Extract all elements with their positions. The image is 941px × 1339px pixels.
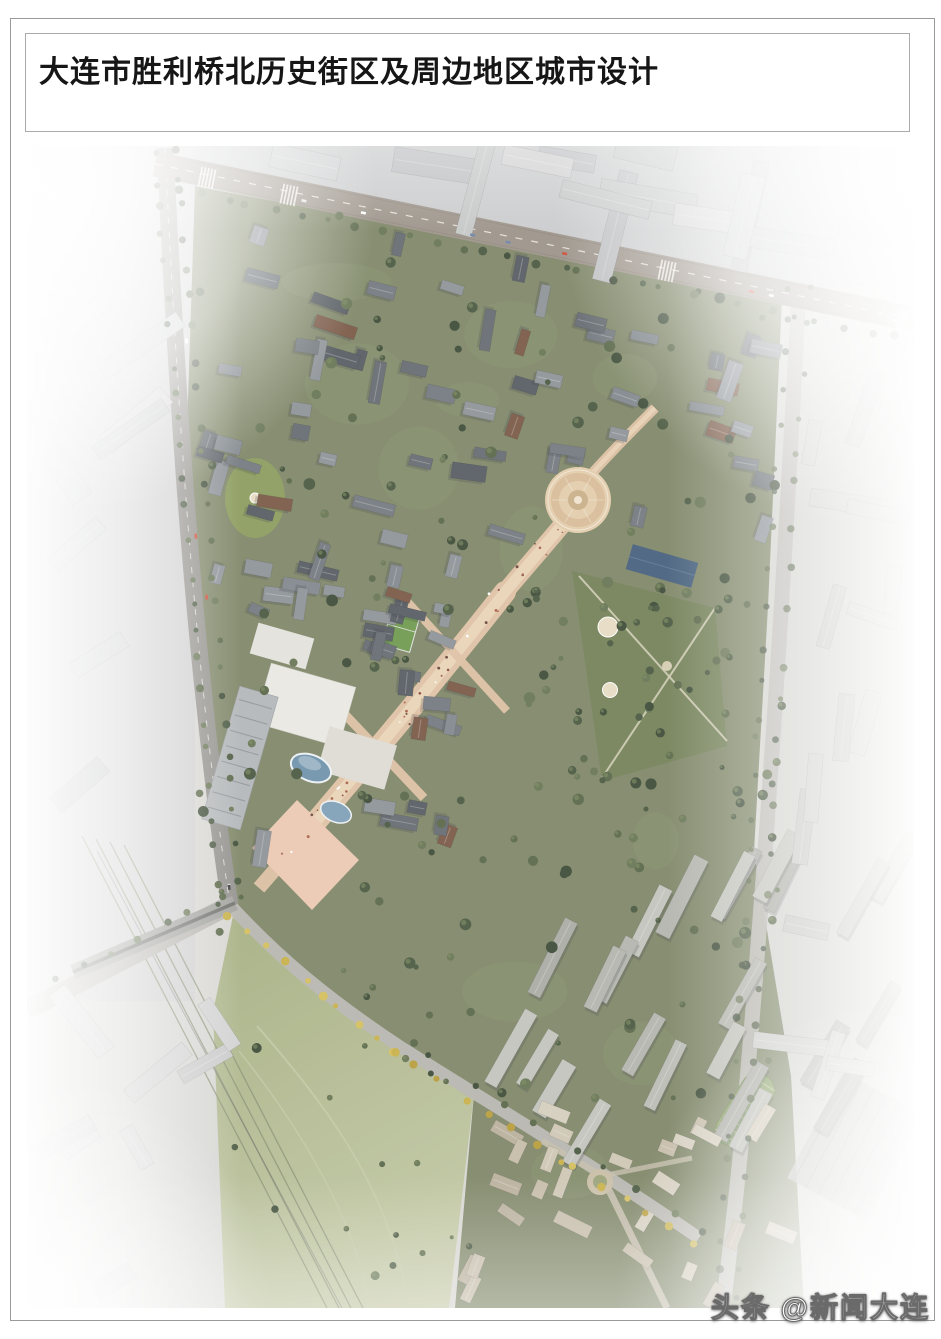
fog-overlay [27, 146, 914, 1308]
masterplan-figure [27, 146, 914, 1308]
aerial-render-canvas [27, 146, 914, 1308]
title-box: 大连市胜利桥北历史街区及周边地区城市设计 [25, 33, 910, 132]
page-title: 大连市胜利桥北历史街区及周边地区城市设计 [26, 34, 909, 90]
watermark: 头条 @新闻大连 [711, 1286, 930, 1326]
article-page: { "header": { "title": "大连市胜利桥北历史街区及周边地区… [0, 0, 941, 1339]
